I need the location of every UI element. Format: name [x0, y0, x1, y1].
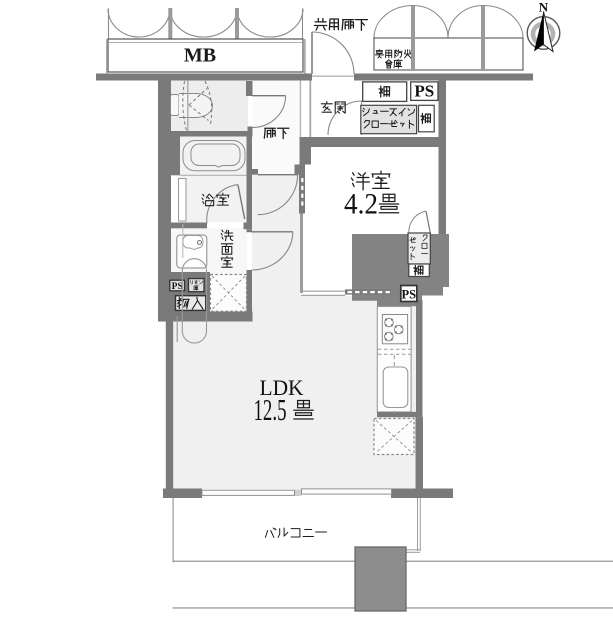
svg-text:N: N	[539, 0, 549, 15]
svg-text:MB: MB	[184, 45, 216, 67]
svg-text:PS: PS	[172, 282, 183, 292]
svg-text:PS: PS	[402, 287, 417, 301]
svg-text:PS: PS	[414, 82, 434, 101]
svg-text:12.5: 12.5	[254, 392, 287, 427]
svg-text:4.2: 4.2	[344, 188, 378, 221]
